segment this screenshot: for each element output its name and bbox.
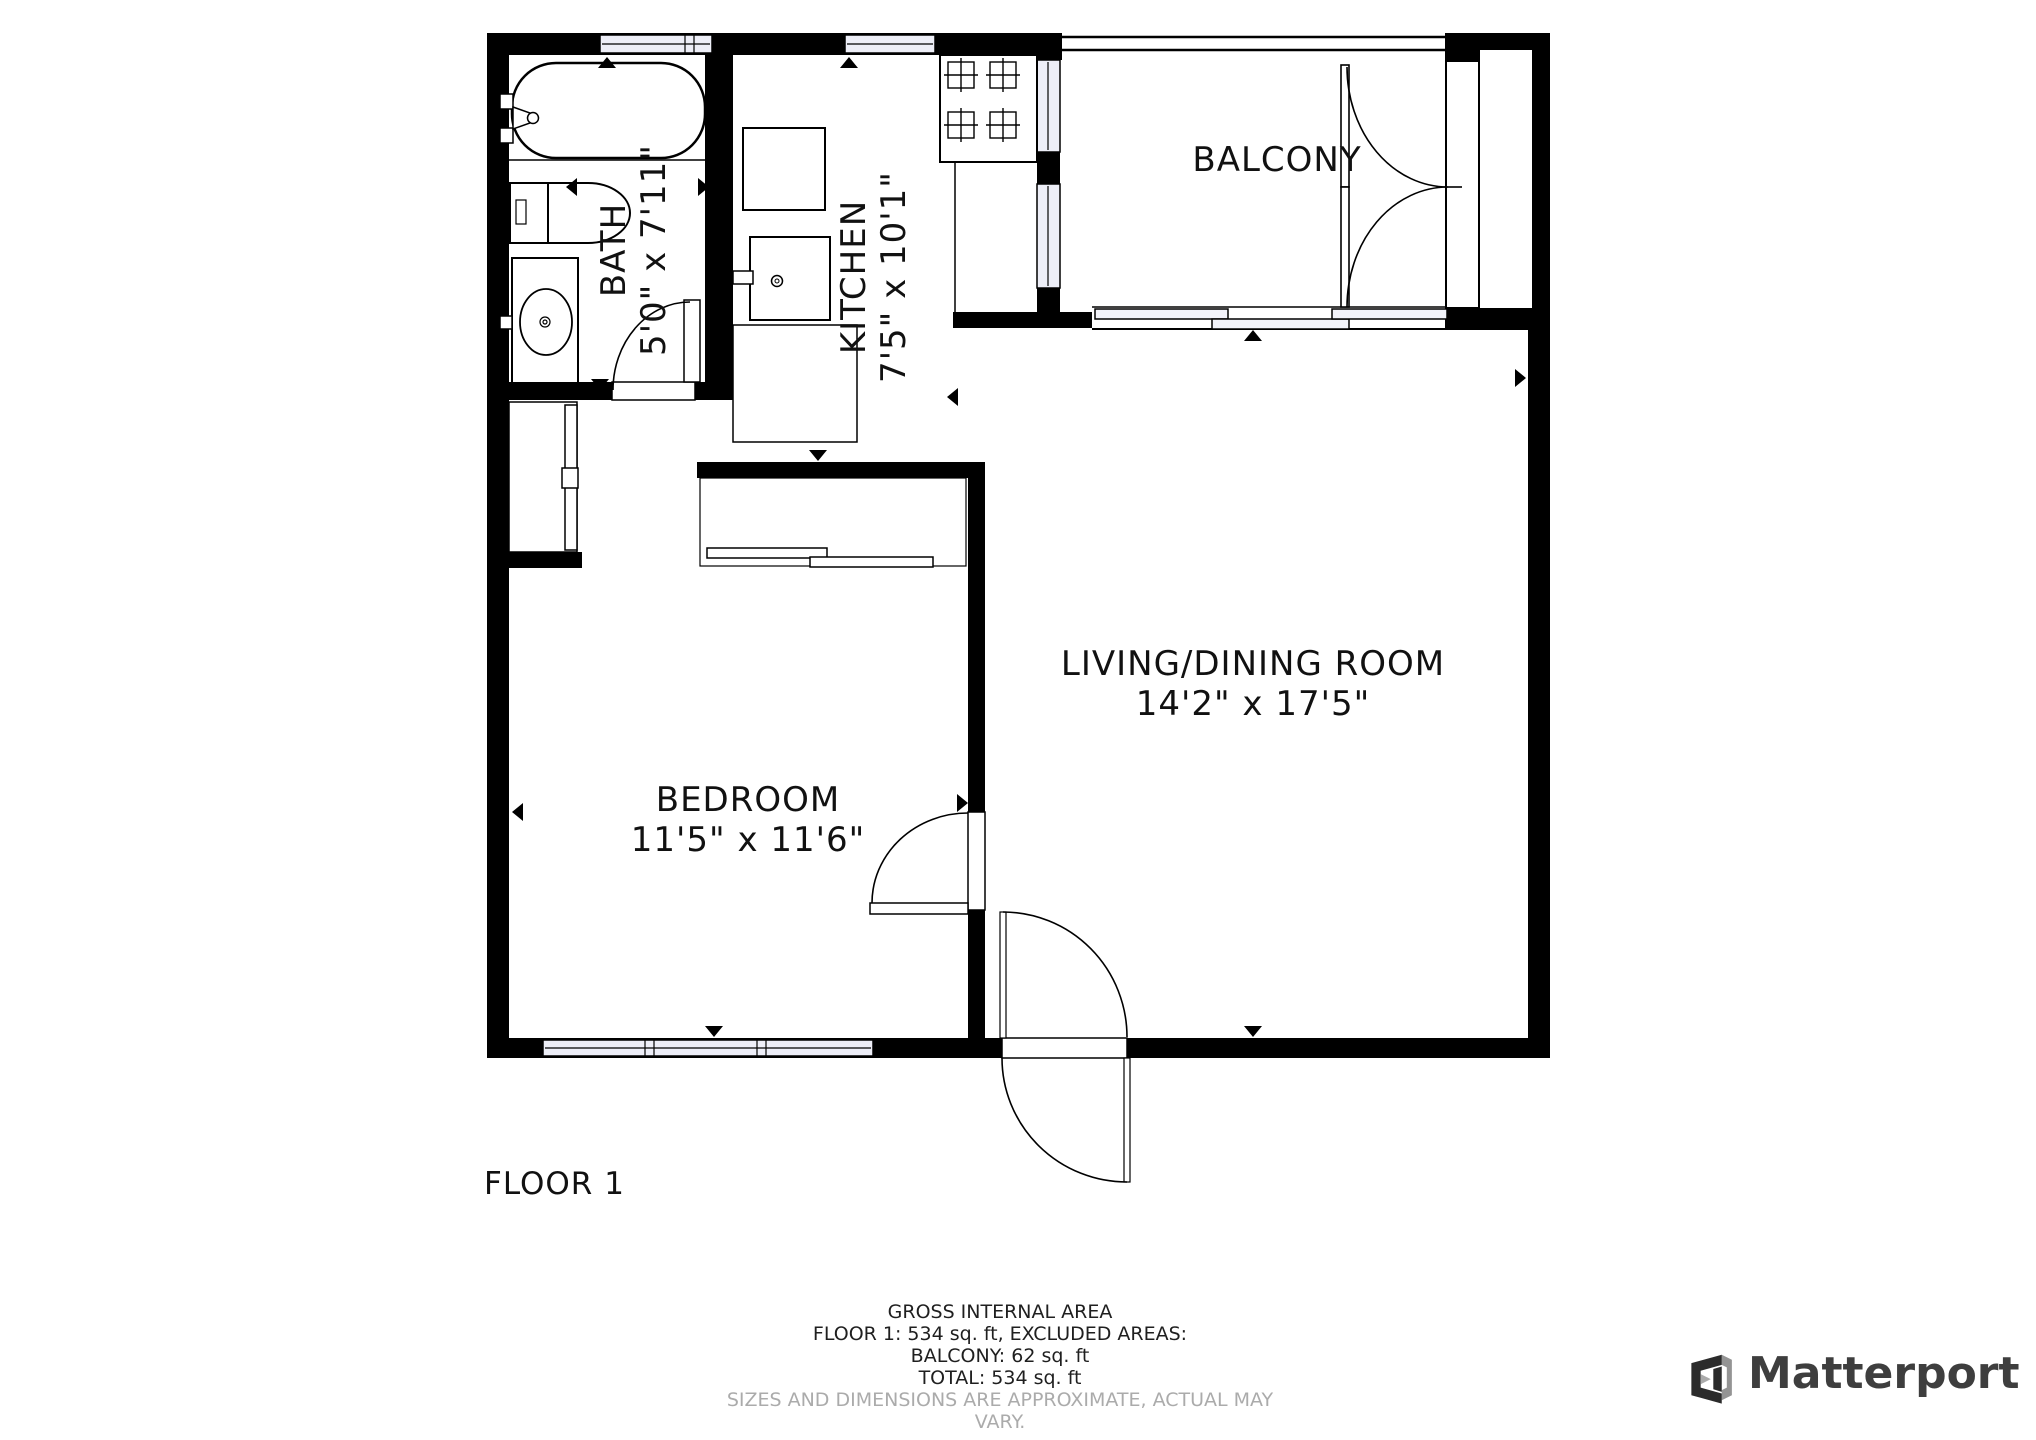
balcony-railing [1055,37,1450,50]
wall-bath-bottom-left [487,382,612,400]
room-dims: 7'5" x 10'1" [874,171,914,383]
wall-bedcloset-top [697,462,985,478]
arrow-up-icon [840,57,858,68]
floor-area-line: FLOOR 1: 534 sq. ft, EXCLUDED AREAS: [700,1323,1300,1345]
hall-closet-door-overlap [562,468,578,488]
room-label-bedroom: BEDROOM 11'5" x 11'6" [631,780,866,860]
room-dims: 5'0" x 7'11" [634,144,674,356]
bedroom-door-threshold [968,812,985,910]
gross-internal-area-line: GROSS INTERNAL AREA [700,1301,1300,1323]
room-label-kitchen: KITCHEN 7'5" x 10'1" [834,171,914,383]
sink-faucet [500,316,512,329]
bath-door-threshold [612,382,695,400]
room-name: BEDROOM [631,780,866,820]
wall-inset-topright [1480,50,1532,308]
total-area-line: TOTAL: 534 sq. ft [700,1367,1300,1389]
tub-faucet-handle [500,128,513,143]
room-dims: 11'5" x 11'6" [631,820,866,860]
arrow-down-icon [705,1026,723,1037]
bedroom-door-leaf [870,903,968,914]
balcony-sliding-door [1092,307,1447,329]
area-summary: GROSS INTERNAL AREA FLOOR 1: 534 sq. ft,… [700,1301,1300,1433]
door-swing-arc [1003,912,1127,1037]
arrow-right-icon [957,794,968,812]
wall-right [1528,308,1550,1058]
door-swing-arc [1347,67,1448,187]
matterport-wordmark: Matterport [1748,1348,2020,1399]
room-label-balcony: BALCONY [1192,140,1361,180]
arrow-down-icon [1244,1026,1262,1037]
door-swing-arc [1347,187,1448,307]
sink-drain [543,320,547,324]
wall-bed-living-upper [968,568,985,812]
closet-slider-panel [810,557,933,567]
room-dims: 14'2" x 17'5" [1061,684,1445,724]
arrow-down-icon [809,450,827,461]
wall-hall-living [953,312,1092,328]
kitchen-faucet [733,271,753,284]
entry-door-threshold [1002,1038,1127,1058]
wall-bed-living-lower [968,910,985,1038]
floorplan-drawing [0,0,2036,1440]
room-name: BATH [594,144,634,356]
room-name: LIVING/DINING ROOM [1061,644,1445,684]
entry-door-leaf-outer [1124,1058,1130,1182]
room-name: KITCHEN [834,171,874,383]
balcony-french-doors [1341,65,1462,307]
door-swing-arc [1002,1058,1127,1182]
wall-top [487,33,1062,55]
bedroom-closet [700,478,966,567]
matterport-branding: Matterport [1688,1348,2036,1418]
room-label-living: LIVING/DINING ROOM 14'2" x 17'5" [1061,644,1445,724]
tub-spout-icon [528,113,539,124]
fridge-icon [743,128,825,210]
wall-bedcloset-right [968,462,985,568]
room-label-bath: BATH 5'0" x 7'11" [594,144,674,356]
bath-door-leaf [684,300,700,382]
entry-door-leaf-inner [1000,912,1006,1038]
wall-balcony-left-cap [1037,288,1060,328]
toilet-flush [516,200,526,224]
wall-bath-kitchen [705,33,733,400]
wall-balcony-left-mid [1037,152,1060,184]
room-name: BALCONY [1192,140,1361,180]
floorplan-page: BATH 5'0" x 7'11" KITCHEN 7'5" x 10'1" B… [0,0,2036,1440]
wall-hallcloset-bottom [487,552,582,568]
arrow-up-icon [1244,330,1262,341]
matterport-logo-icon [1688,1350,1742,1410]
balcony-door-threshold [1447,62,1478,307]
arrow-left-icon [947,388,958,406]
closet-slider-panel [707,548,827,558]
wall-left [487,33,509,1058]
kitchen-sink-counter [750,237,830,320]
tub-faucet-handle [500,94,513,109]
balcony-area-line: BALCONY: 62 sq. ft [700,1345,1300,1367]
kitchen-drain [775,279,779,283]
disclaimer-line: SIZES AND DIMENSIONS ARE APPROXIMATE, AC… [700,1389,1300,1433]
floor-title: FLOOR 1 [484,1166,625,1202]
door-swing-arc [872,813,968,903]
arrow-right-icon [1515,369,1526,387]
wall-bath-bottom-right [695,382,733,400]
hall-closet [509,402,578,552]
arrow-left-icon [512,803,523,821]
